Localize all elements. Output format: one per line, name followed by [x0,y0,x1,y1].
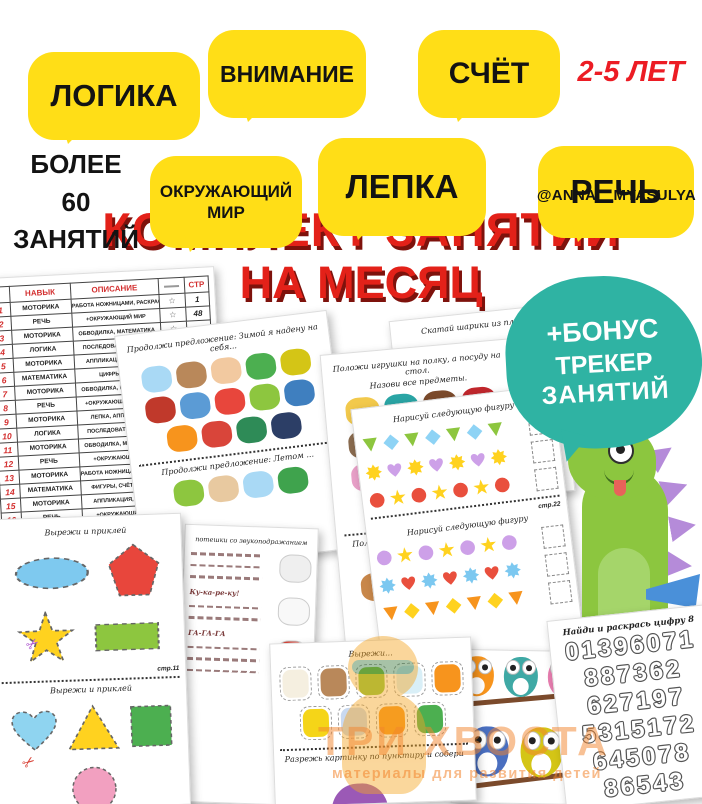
triangle-shape [423,598,442,617]
hen-illustration [279,554,312,583]
boy-in-cap-illustration [276,466,309,495]
table-cell: 48 [186,306,211,321]
triangle-up-shape [64,701,122,755]
outlined-digit: 3 [668,768,687,795]
table-cell: 1 [185,292,210,307]
watermark-tagline: материалы для развития детей [332,766,602,782]
text-line-placeholder [191,552,263,557]
heart-shape [427,455,446,474]
flower-shape [489,447,508,466]
red-sweater-illustration [200,419,233,448]
sticker-cut-outline [431,661,464,696]
text-line-placeholder [190,575,262,580]
cut-shapes-set-1 [0,535,179,671]
table-cell: 4 [0,344,13,359]
star-shape [472,478,491,497]
table-cell: 6 [0,372,14,387]
green-pants-illustration [248,382,281,411]
yellow-sweater-illustration [279,347,312,376]
star-outline-icon: ☆ [159,307,186,322]
owl-pupil [510,665,515,671]
tiny-text-placeholder [164,285,179,288]
circle-shape [416,543,435,562]
table-cell: 11 [0,442,18,457]
rect-shape [92,613,162,661]
triangle-shape [403,430,422,449]
star-shape [430,483,449,502]
owl-belly [512,678,529,696]
boy-illustration [210,356,243,385]
egg-illustration [282,669,309,698]
flower-shape [503,560,522,579]
circle-shape [500,533,519,552]
table-cell: 7 [0,386,15,401]
star-shape [389,488,408,507]
heart-shape [468,450,487,469]
star-shape [396,545,415,564]
col-star [158,277,185,294]
diamond-shape [486,591,505,610]
brown-dress-illustration [175,360,208,389]
text-line-placeholder [187,668,259,673]
navy-jacket-illustration [269,411,302,440]
triangle-shape [444,425,463,444]
green-scarf-illustration [244,352,277,381]
table-cell: 3 [0,330,12,345]
table-cell: 10 [0,428,17,443]
blue-mittens-illustration [179,391,212,420]
table-cell: 14 [0,484,20,499]
outlined-digit: 1 [678,627,697,654]
table-cell: 5 [0,358,14,373]
pattern-section-2 [374,524,572,625]
promo-poster: ЛОГИКА ВНИМАНИЕ СЧЁТ 2-5 ЛЕТ БОЛЕЕ 60 ЗА… [0,0,702,804]
circle-shape [493,475,512,494]
table-cell: 2 [0,316,11,331]
flower-shape [378,576,397,595]
heart-shape [399,573,418,592]
rhyme-sound: ГА-ГА-ГА [188,627,260,639]
heart-shape [385,460,404,479]
sticker-cut-outline [279,666,312,701]
flower-shape [448,452,467,471]
red-vest-illustration [144,395,177,424]
blue-sweater-illustration [140,364,173,393]
outlined-digit: 7 [668,684,687,711]
circle-shape [451,480,470,499]
diamond-shape [423,427,442,446]
flower-shape [364,463,383,482]
count-line: БОЛЕЕ [6,146,146,184]
table-cell: 9 [0,414,16,429]
flower-shape [406,457,425,476]
text-line-placeholder [189,616,261,621]
bonus-line: +БОНУС [546,313,659,350]
count-line: 60 [6,184,146,222]
text-line-placeholder [188,645,260,650]
cat-glasses [352,660,414,674]
flower-shape [420,571,439,590]
glass-of-juice-illustration [434,664,461,693]
owl-pupil [482,664,487,670]
blue-sweater-illustration [241,470,274,499]
badge-lepka: ЛЕПКА [318,138,486,236]
text-line-placeholder [187,657,259,662]
ellipse-shape [12,546,92,601]
orange-socks-illustration [165,424,198,453]
cut-shapes-set-2 [2,693,184,804]
star-shape [437,540,456,559]
star-shape [479,535,498,554]
col-page: СТР [184,276,209,293]
dino-spike [668,512,698,542]
circle-shape [375,548,394,567]
owl-eye [506,660,521,675]
table-cell: 12 [0,456,19,471]
text-line-placeholder [189,604,261,609]
owl-eye [478,659,493,674]
flower-shape [462,565,481,584]
age-range-label: 2-5 ЛЕТ [562,56,700,89]
diamond-shape [382,432,401,451]
circle-shape [409,485,428,504]
badge-vnimanie: ВНИМАНИЕ [208,30,366,118]
pentagon-shape [106,542,162,600]
green-pants-illustration [172,478,205,507]
circle-shape [69,763,121,804]
worksheet-cut-shapes: Вырежи и приклей ✂ стр.11 Вырежи и прикл… [0,513,191,804]
square-shape [124,699,178,753]
owl-pupil [526,665,531,671]
triangle-shape [382,604,401,623]
red-jacket-illustration [214,387,247,416]
heart-shape [441,568,460,587]
star-outline-icon: ☆ [159,293,186,308]
circle-shape [368,490,387,509]
owl-eye [522,660,537,675]
worksheet-title: потешки со звукоподражанием [191,535,311,547]
triangle-shape [486,419,505,438]
blue-shorts-illustration [283,378,316,407]
outlined-digit: 2 [665,656,684,683]
badge-schet: СЧЁТ [418,30,560,118]
badge-okruzhayushchiy-mir: ОКРУЖАЮЩИЙ МИР [150,156,302,248]
table-cell: 15 [0,498,20,513]
text-line-placeholder [190,563,262,568]
heart-shape [482,563,501,582]
dino-spike [665,551,693,579]
table-cell: 13 [0,470,19,485]
diamond-shape [465,422,484,441]
goose-illustration [277,597,310,626]
table-cell: 8 [0,400,16,415]
pattern-section-1 [361,411,559,512]
diamond-shape [402,601,421,620]
doll-illustration [207,474,240,503]
dino-tongue [614,480,626,496]
triangle-shape [507,588,526,607]
green-hat-illustration [235,415,268,444]
circle-shape [458,538,477,557]
triangle-shape [361,435,380,454]
instagram-handle: @ANNA__MYASULYA [537,187,696,204]
triangle-shape [465,593,484,612]
rhyme-sound: Ку-ка-ре-ку! [189,586,261,598]
bonus-line: ЗАНЯТИЙ [541,376,670,412]
badge-logika: ЛОГИКА [28,52,200,140]
count-line: ЗАНЯТИЙ [6,221,146,259]
lessons-count-label: БОЛЕЕ 60 ЗАНЯТИЙ [6,146,146,259]
watermark-brand: ТРИ ХВОСТА [318,718,702,765]
rhyme-text-column: Ку-ка-ре-ку! ГА-ГА-ГА [187,552,263,673]
heart-shape [6,704,62,756]
diamond-shape [444,596,463,615]
owl-illustration [504,657,539,698]
